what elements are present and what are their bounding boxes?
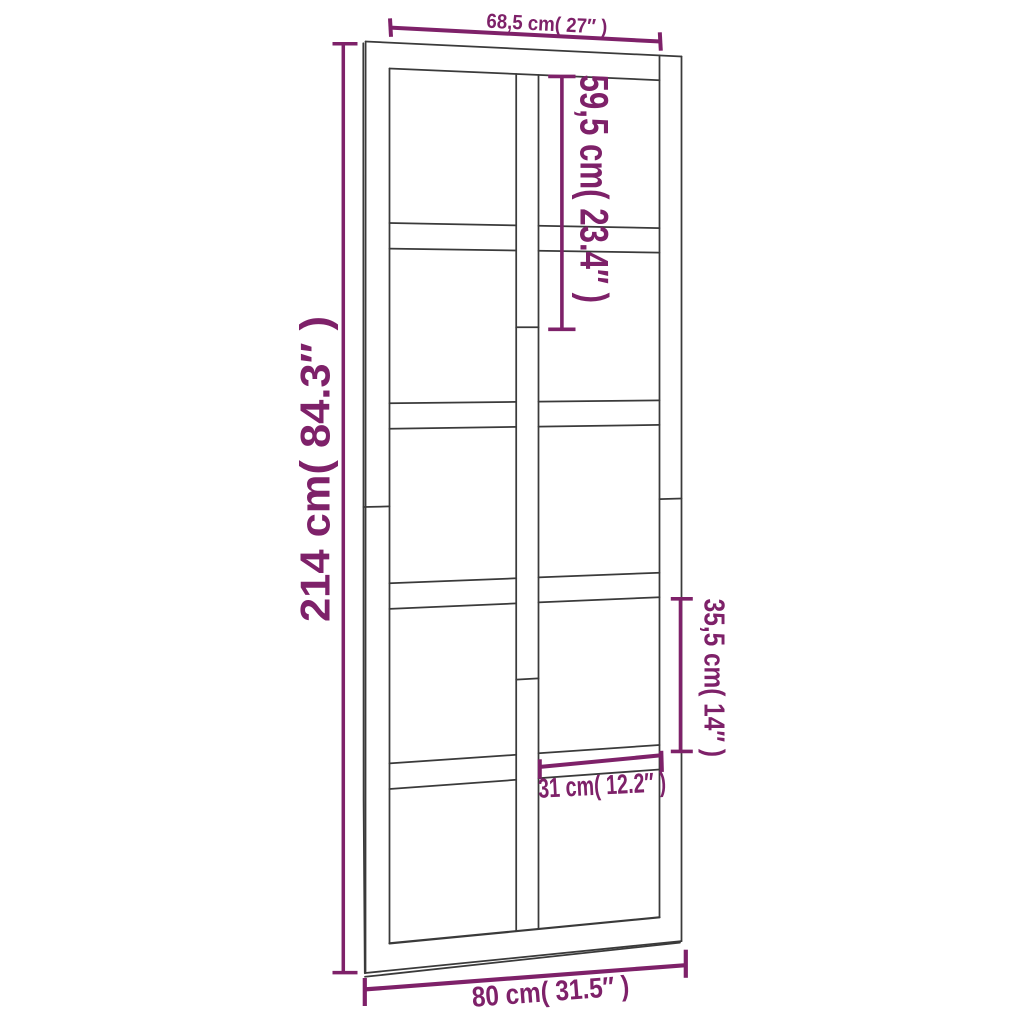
svg-text:35,5 cm( 14″ ): 35,5 cm( 14″ )	[698, 599, 730, 757]
svg-text:59,5 cm( 23.4″ ): 59,5 cm( 23.4″ )	[572, 75, 616, 303]
svg-text:214 cm( 84.3″ ): 214 cm( 84.3″ )	[292, 316, 339, 622]
